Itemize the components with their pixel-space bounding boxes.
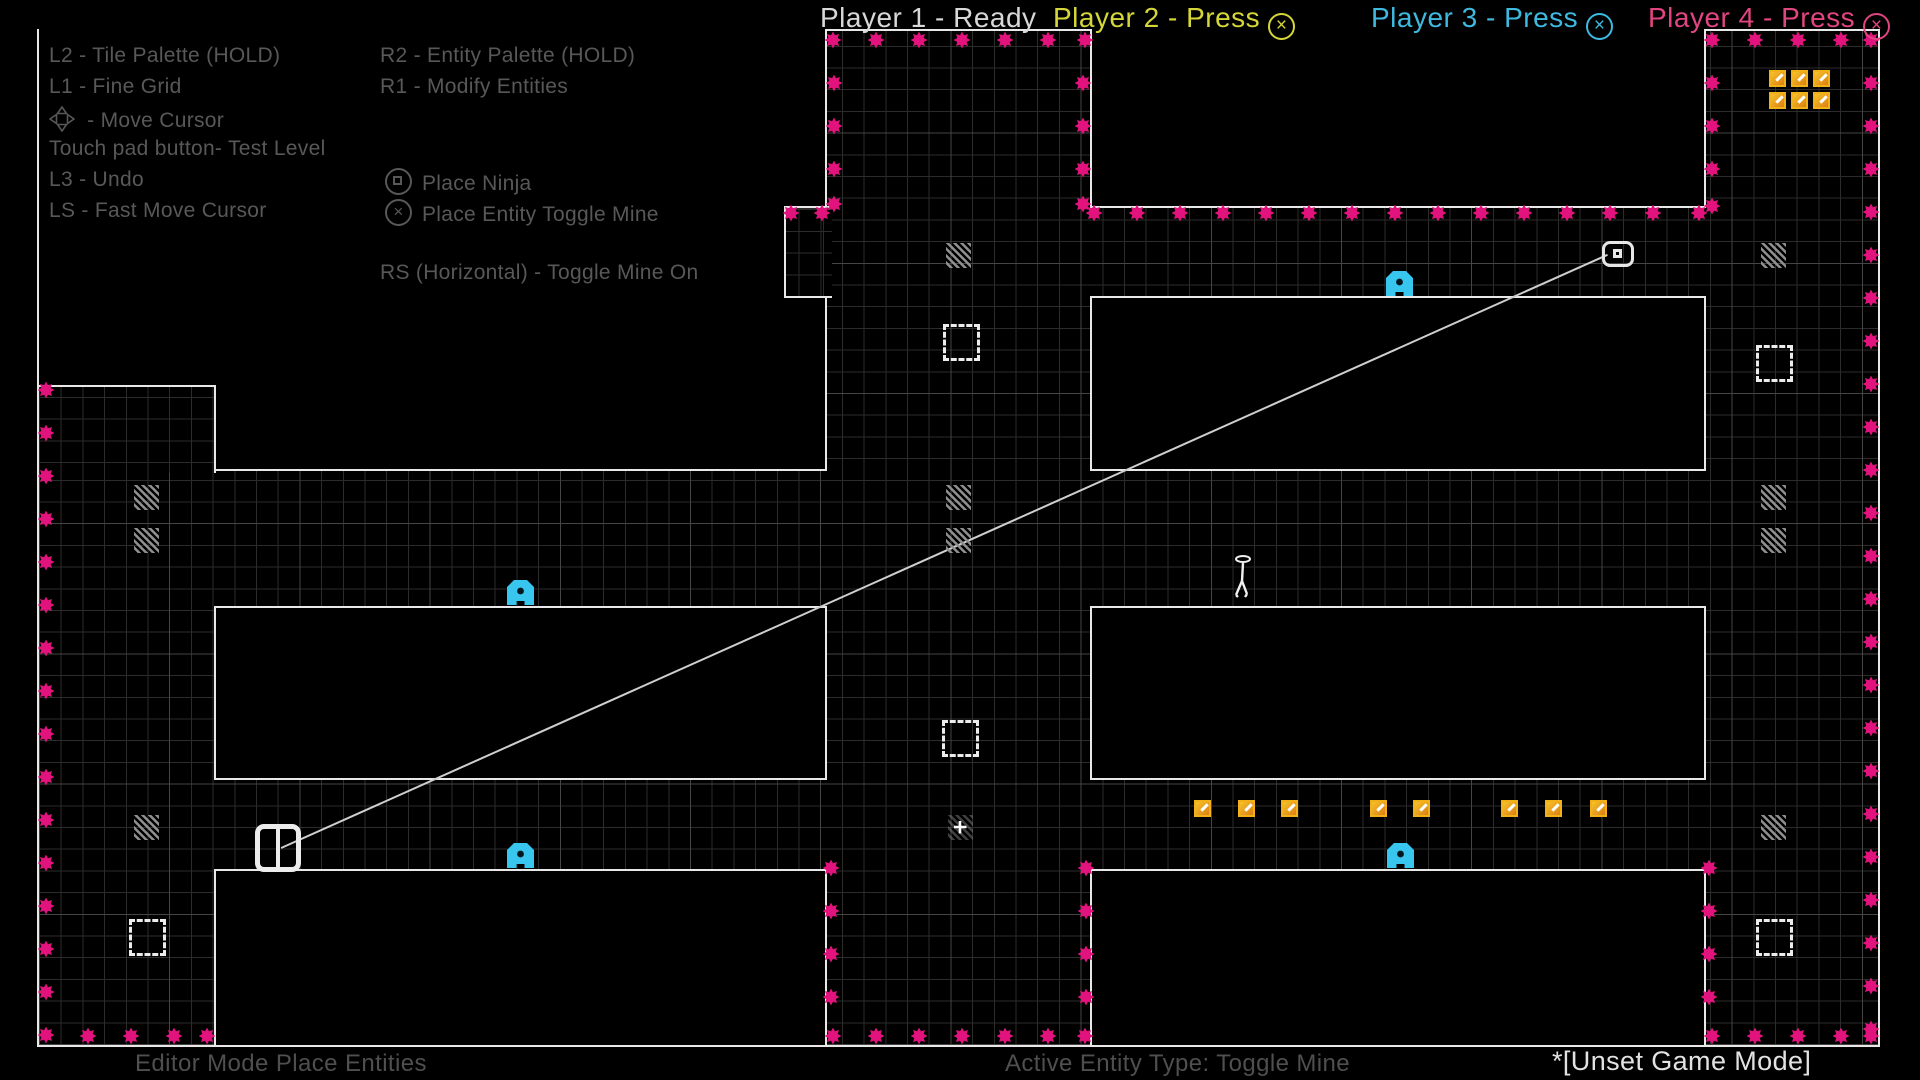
player-status-label: Player 3 - Press <box>1371 2 1578 33</box>
toggle-mine[interactable] <box>954 32 971 49</box>
toggle-mine[interactable] <box>166 1028 183 1045</box>
toggle-mine[interactable] <box>1704 118 1721 135</box>
toggle-mine[interactable] <box>1863 720 1880 737</box>
help-label: L1 - Fine Grid <box>49 75 182 98</box>
toggle-mine[interactable] <box>1863 677 1880 694</box>
level-layer <box>0 0 1920 1080</box>
toggle-mine[interactable] <box>1790 1028 1807 1045</box>
player-3-status: Player 3 - Press× <box>1371 2 1613 40</box>
toggle-mine[interactable] <box>1040 1028 1057 1045</box>
hatch-marker <box>134 528 159 553</box>
toggle-mine[interactable] <box>38 554 55 571</box>
toggle-mine[interactable] <box>1863 505 1880 522</box>
toggle-mine[interactable] <box>1863 161 1880 178</box>
toggle-mine[interactable] <box>814 205 831 222</box>
toggle-mine[interactable] <box>868 32 885 49</box>
toggle-mine[interactable] <box>199 1028 216 1045</box>
help-label: LS - Fast Move Cursor <box>49 199 267 222</box>
toggle-mine[interactable] <box>38 468 55 485</box>
toggle-mine[interactable] <box>38 726 55 743</box>
gold-piece[interactable] <box>1813 92 1830 109</box>
gold-piece[interactable] <box>1238 800 1255 817</box>
game-mode-status: *[Unset Game Mode] <box>1552 1046 1811 1077</box>
toggle-mine[interactable] <box>825 1028 842 1045</box>
hatch-marker <box>1761 815 1786 840</box>
gold-piece[interactable] <box>1769 70 1786 87</box>
help-left-row-5: LS - Fast Move Cursor <box>49 199 267 223</box>
gold-piece[interactable] <box>1590 800 1607 817</box>
toggle-mine[interactable] <box>1833 1028 1850 1045</box>
toggle-mine[interactable] <box>1430 205 1447 222</box>
gold-piece[interactable] <box>1545 800 1562 817</box>
toggle-mine[interactable] <box>826 196 843 213</box>
toggle-mine[interactable] <box>1863 419 1880 436</box>
toggle-mine[interactable] <box>38 640 55 657</box>
wall-tile-block[interactable] <box>214 606 827 780</box>
blue-entity-holder[interactable] <box>507 580 534 610</box>
toggle-mine[interactable] <box>1078 860 1095 877</box>
dpad-icon <box>49 106 75 132</box>
toggle-mine[interactable] <box>1129 205 1146 222</box>
toggle-mine[interactable] <box>1075 161 1092 178</box>
cross-button-icon: × <box>1586 13 1613 40</box>
toggle-mine[interactable] <box>1086 205 1103 222</box>
gold-piece[interactable] <box>1791 70 1808 87</box>
toggle-mine[interactable] <box>1645 205 1662 222</box>
toggle-mine[interactable] <box>1077 1028 1094 1045</box>
gold-piece[interactable] <box>1769 92 1786 109</box>
toggle-mine[interactable] <box>1704 75 1721 92</box>
help-right-row-2: Place Ninja <box>385 168 532 196</box>
toggle-mine[interactable] <box>38 683 55 700</box>
toggle-mine[interactable] <box>1078 946 1095 963</box>
hatch-marker <box>946 528 971 553</box>
toggle-mine[interactable] <box>1863 290 1880 307</box>
player-status-label: Player 1 - Ready <box>820 2 1037 33</box>
open-area-patch <box>39 385 216 473</box>
editor-cursor-divider <box>276 829 280 867</box>
hatch-marker <box>1761 528 1786 553</box>
help-label: - Move Cursor <box>87 109 224 132</box>
toggle-mine[interactable] <box>1863 591 1880 608</box>
help-label: RS (Horizontal) - Toggle Mine On <box>380 261 699 284</box>
toggle-mine[interactable] <box>1559 205 1576 222</box>
help-left-row-0: L2 - Tile Palette (HOLD) <box>49 44 280 68</box>
drone-core <box>1613 249 1622 258</box>
toggle-mine[interactable] <box>38 984 55 1001</box>
blue-entity[interactable] <box>1387 843 1414 868</box>
player-status-label: Player 2 - Press <box>1053 2 1260 33</box>
toggle-mine[interactable] <box>1701 860 1718 877</box>
toggle-mine[interactable] <box>1701 989 1718 1006</box>
toggle-mine[interactable] <box>868 1028 885 1045</box>
help-label: Place Ninja <box>422 172 532 195</box>
help-label: L3 - Undo <box>49 168 144 191</box>
help-right-row-1: R1 - Modify Entities <box>380 75 568 99</box>
toggle-mine[interactable] <box>1473 205 1490 222</box>
cross-circle-icon-glyph: × <box>387 201 410 223</box>
toggle-mine[interactable] <box>1516 205 1533 222</box>
toggle-mine[interactable] <box>826 161 843 178</box>
editor-cursor[interactable] <box>255 824 301 872</box>
toggle-mine[interactable] <box>1075 118 1092 135</box>
toggle-mine[interactable] <box>826 118 843 135</box>
toggle-mine[interactable] <box>38 941 55 958</box>
toggle-mine[interactable] <box>1704 161 1721 178</box>
toggle-mine[interactable] <box>911 1028 928 1045</box>
help-right-row-0: R2 - Entity Palette (HOLD) <box>380 44 635 68</box>
toggle-mine[interactable] <box>1863 376 1880 393</box>
cross-button-icon: × <box>1268 13 1295 40</box>
blue-entity[interactable] <box>1386 271 1413 296</box>
blue-entity-holder[interactable] <box>1387 843 1414 873</box>
toggle-mine[interactable] <box>38 898 55 915</box>
hatch-marker <box>1761 243 1786 268</box>
toggle-mine[interactable] <box>1258 205 1275 222</box>
help-label: R2 - Entity Palette (HOLD) <box>380 44 635 67</box>
dashed-outline-marker[interactable] <box>1756 919 1793 956</box>
blue-entity-holder[interactable] <box>1386 271 1413 301</box>
toggle-mine[interactable] <box>123 1028 140 1045</box>
help-left-row-1: L1 - Fine Grid <box>49 75 182 99</box>
toggle-mine[interactable] <box>38 511 55 528</box>
toggle-mine[interactable] <box>1863 935 1880 952</box>
toggle-mine[interactable] <box>1344 205 1361 222</box>
toggle-mine[interactable] <box>1863 462 1880 479</box>
toggle-mine[interactable] <box>38 382 55 399</box>
gold-piece[interactable] <box>1413 800 1430 817</box>
wall-tile-block[interactable] <box>1090 606 1706 780</box>
toggle-mine[interactable] <box>1387 205 1404 222</box>
wall-tile-block[interactable] <box>1090 869 1706 1045</box>
toggle-mine[interactable] <box>1172 205 1189 222</box>
help-label: Touch pad button- Test Level <box>49 137 326 160</box>
toggle-mine[interactable] <box>1078 903 1095 920</box>
toggle-mine[interactable] <box>1863 247 1880 264</box>
toggle-mine[interactable] <box>1078 989 1095 1006</box>
toggle-mine[interactable] <box>38 1027 55 1044</box>
hatch-marker <box>134 815 159 840</box>
dashed-outline-marker[interactable] <box>1756 345 1793 382</box>
toggle-mine[interactable] <box>1701 903 1718 920</box>
toggle-mine[interactable] <box>1701 946 1718 963</box>
toggle-mine[interactable] <box>1863 204 1880 221</box>
help-left-row-3: Touch pad button- Test Level <box>49 137 326 161</box>
blue-entity-holder[interactable] <box>507 843 534 873</box>
help-right-row-3: ×Place Entity Toggle Mine <box>385 199 659 227</box>
toggle-mine[interactable] <box>1215 205 1232 222</box>
toggle-mine[interactable] <box>1863 1028 1880 1045</box>
hatch-marker <box>946 243 971 268</box>
toggle-mine[interactable] <box>1602 205 1619 222</box>
cross-circle-icon: × <box>385 199 412 226</box>
toggle-mine[interactable] <box>997 1028 1014 1045</box>
help-label: L2 - Tile Palette (HOLD) <box>49 44 280 67</box>
help-right-row-4: RS (Horizontal) - Toggle Mine On <box>380 261 699 285</box>
hatch-marker <box>946 485 971 510</box>
player-1-status: Player 1 - Ready <box>820 2 1037 34</box>
blue-entity[interactable] <box>507 843 534 868</box>
gold-piece[interactable] <box>1194 800 1211 817</box>
toggle-mine[interactable] <box>823 903 840 920</box>
toggle-mine[interactable] <box>783 205 800 222</box>
ninja-holder[interactable] <box>1230 554 1256 609</box>
toggle-mine[interactable] <box>1863 892 1880 909</box>
toggle-mine[interactable] <box>1863 763 1880 780</box>
wall-tile-block[interactable] <box>214 869 827 1045</box>
toggle-mine[interactable] <box>954 1028 971 1045</box>
toggle-mine[interactable] <box>1075 75 1092 92</box>
hatch-marker <box>1761 485 1786 510</box>
help-label: R1 - Modify Entities <box>380 75 568 98</box>
player-4-status: Player 4 - Press× <box>1648 2 1890 40</box>
toggle-mine[interactable] <box>1704 1028 1721 1045</box>
cross-button-icon: × <box>1863 13 1890 40</box>
toggle-mine[interactable] <box>38 597 55 614</box>
toggle-mine[interactable] <box>1863 333 1880 350</box>
gold-piece[interactable] <box>1791 92 1808 109</box>
toggle-mine[interactable] <box>1863 634 1880 651</box>
active-entity-status: Active Entity Type: Toggle Mine <box>1005 1050 1350 1078</box>
dashed-outline-marker[interactable] <box>942 720 979 757</box>
toggle-mine[interactable] <box>825 32 842 49</box>
toggle-mine[interactable] <box>1863 118 1880 135</box>
toggle-mine[interactable] <box>1691 205 1708 222</box>
toggle-mine[interactable] <box>823 946 840 963</box>
help-label: Place Entity Toggle Mine <box>422 203 659 226</box>
gold-piece[interactable] <box>1370 800 1387 817</box>
gold-piece[interactable] <box>1501 800 1518 817</box>
toggle-mine[interactable] <box>1863 548 1880 565</box>
gold-piece[interactable] <box>1281 800 1298 817</box>
toggle-mine[interactable] <box>1863 75 1880 92</box>
dashed-outline-marker[interactable] <box>943 324 980 361</box>
square-circle-icon-glyph <box>393 176 402 185</box>
blue-entity[interactable] <box>507 580 534 605</box>
level-editor-screen: Player 1 - ReadyPlayer 2 - Press×Player … <box>0 0 1920 1080</box>
toggle-mine[interactable] <box>997 32 1014 49</box>
player-2-status: Player 2 - Press× <box>1053 2 1295 40</box>
toggle-mine[interactable] <box>1704 198 1721 215</box>
toggle-mine[interactable] <box>1747 1028 1764 1045</box>
toggle-mine[interactable] <box>80 1028 97 1045</box>
editor-mode-status: Editor Mode Place Entities <box>135 1050 427 1078</box>
toggle-mine[interactable] <box>911 32 928 49</box>
toggle-mine[interactable] <box>38 812 55 829</box>
player-status-label: Player 4 - Press <box>1648 2 1855 33</box>
hatch-marker <box>134 485 159 510</box>
ninja-figure[interactable] <box>1230 554 1256 604</box>
toggle-mine[interactable] <box>1301 205 1318 222</box>
toggle-mine[interactable] <box>826 75 843 92</box>
toggle-mine[interactable] <box>38 855 55 872</box>
toggle-mine[interactable] <box>38 425 55 442</box>
drone-entity[interactable] <box>1602 241 1634 267</box>
help-left-row-4: L3 - Undo <box>49 168 144 192</box>
wall-tile-block[interactable] <box>1090 29 1706 208</box>
toggle-mine[interactable] <box>1863 849 1880 866</box>
dashed-outline-marker[interactable] <box>129 919 166 956</box>
square-circle-icon <box>385 168 412 195</box>
gold-piece[interactable] <box>1813 70 1830 87</box>
toggle-mine[interactable] <box>823 989 840 1006</box>
toggle-mine[interactable] <box>38 769 55 786</box>
help-left-row-2: - Move Cursor <box>49 106 224 133</box>
toggle-mine[interactable] <box>823 860 840 877</box>
toggle-mine[interactable] <box>1863 806 1880 823</box>
toggle-mine[interactable] <box>1863 978 1880 995</box>
map-frame <box>1878 29 1880 1047</box>
